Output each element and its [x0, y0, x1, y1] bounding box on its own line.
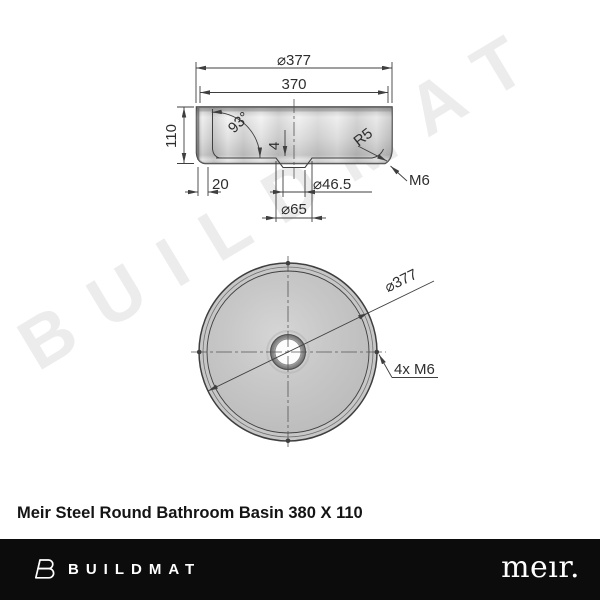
buildmat-logo-text: BUILDMAT — [68, 561, 201, 578]
dim-height: 110 — [163, 124, 180, 148]
dim-mounting-holes: 4x M6 — [394, 361, 435, 378]
dim-top-outer-diameter: ⌀377 — [382, 266, 420, 296]
dim-drain-recess-diameter: ⌀46.5 — [313, 176, 351, 193]
dim-thread: M6 — [409, 172, 430, 189]
footer-bar: BUILDMAT meır. — [0, 539, 600, 600]
dim-drain-diameter: ⌀65 — [281, 201, 307, 218]
buildmat-logo-icon — [30, 558, 57, 581]
dim-recess-depth: 4 — [266, 142, 283, 150]
buildmat-logo: BUILDMAT — [30, 558, 201, 581]
dim-outer-diameter: ⌀377 — [277, 52, 311, 69]
product-dimension-sheet: BUILDMAT — [0, 0, 600, 600]
product-title: Meir Steel Round Bathroom Basin 380 X 11… — [17, 504, 363, 523]
meir-logo: meır. — [501, 553, 580, 587]
dim-base-inset: 20 — [212, 176, 229, 193]
dim-inner-width: 370 — [281, 76, 306, 93]
technical-drawing: BUILDMAT — [0, 0, 600, 540]
